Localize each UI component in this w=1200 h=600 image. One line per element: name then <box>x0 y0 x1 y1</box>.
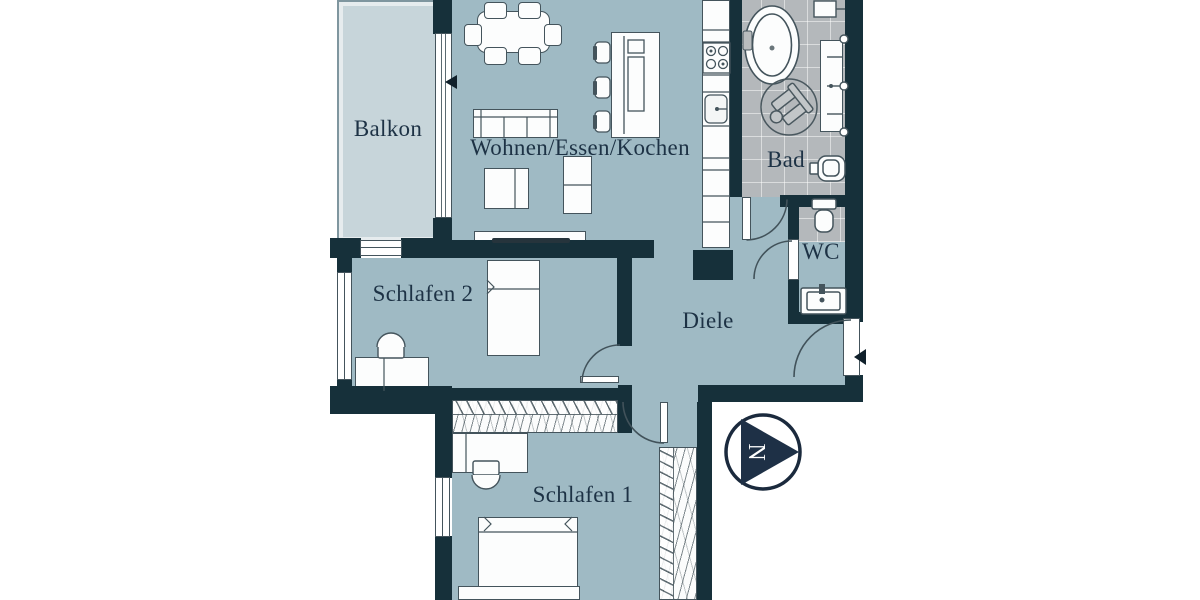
door-arc-schlafen1 <box>623 402 664 443</box>
compass-north-label: N <box>743 443 769 460</box>
door-arc-entrance <box>794 320 851 377</box>
wheelchair-turning-circle-icon <box>761 79 817 135</box>
door-arc-bad <box>747 200 788 241</box>
north-compass: N <box>726 415 800 489</box>
stove-icon <box>703 43 730 73</box>
room-label-schlafen2: Schlafen 2 <box>373 281 474 307</box>
sink-kitchen-icon <box>705 95 727 123</box>
room-label-wohnen: Wohnen/Essen/Kochen <box>470 135 690 161</box>
room-label-schlafen1: Schlafen 1 <box>533 482 634 508</box>
tv-icon <box>492 238 570 243</box>
door-arc-wc <box>754 241 792 279</box>
sink-wc <box>801 284 846 314</box>
desk-chairs <box>377 333 500 489</box>
room-label-wc: WC <box>802 239 840 265</box>
room-label-balkon: Balkon <box>354 116 422 142</box>
room-label-bad: Bad <box>767 147 805 173</box>
floorplan-canvas: N Balkon Wohnen/Essen/Kochen Bad WC Diel… <box>0 0 1200 600</box>
bath-fittings <box>814 1 848 136</box>
door-arc-schlafen2 <box>582 345 620 383</box>
toilet-bad <box>810 156 845 181</box>
bathtub <box>743 6 799 84</box>
room-label-diele: Diele <box>682 308 733 334</box>
shower-fixture <box>814 1 836 17</box>
toilet-wc <box>812 199 836 232</box>
balcony-door-arrow-icon <box>445 75 457 89</box>
fixtures-overlay: N <box>0 0 1200 600</box>
kitchen-details <box>624 30 730 222</box>
entrance-arrow-icon <box>854 349 866 365</box>
bar-stools <box>593 42 610 132</box>
